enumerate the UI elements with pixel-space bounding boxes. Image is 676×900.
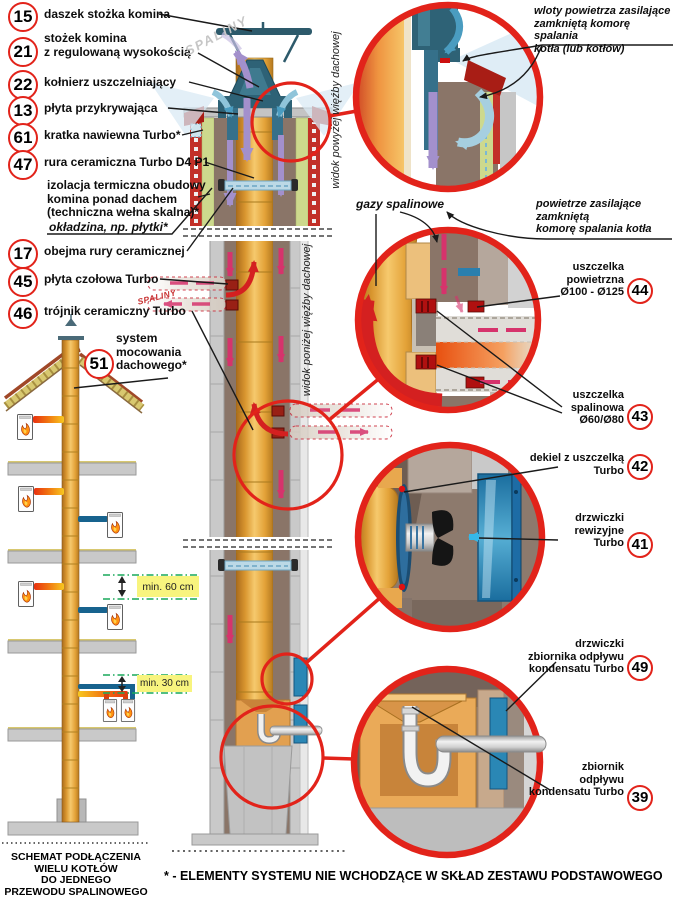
callout-label-drzwiczki-rewizyjne: drzwiczki rewizyjne Turbo [534,512,624,550]
view-label-above-roof: widok powyżej więźby dachowej [330,15,342,205]
boiler-icon [108,605,123,630]
callout-label-stozek: stożek komina z regulowaną wysokością [44,32,191,59]
callout-label-rura: rura ceramiczna Turbo D4 P1 [44,156,209,170]
callout-label-daszek: daszek stożka komina [44,8,170,22]
callout-badge-45: 45 [8,267,38,297]
callout-badge-43: 43 [627,404,653,430]
callout-label-kratka: kratka nawiewna Turbo* [44,129,180,143]
dimension-min60: min. 60 cm [137,576,199,597]
view-label-below-roof: widok poniżej więźby dachowej [301,225,313,415]
chimney-cross-section [148,22,392,851]
detail-circle-tee [356,230,548,412]
callout-label-uszczelka-spalinowa: uszczelka spalinowa Ø60/Ø80 [534,389,624,427]
footnote: * - ELEMENTY SYSTEMU NIE WCHODZĄCE W SKŁ… [164,869,674,883]
callout-badge-47: 47 [8,150,38,180]
callout-label-gazy: gazy spalinowe [356,198,444,212]
boiler-icon [19,487,34,512]
boiler-icon [19,582,34,607]
callout-label-powietrze: powietrze zasilające zamkniętą komorę sp… [536,198,676,236]
schematic-title: SCHEMAT PODŁĄCZENIA WIELU KOTŁÓW DO JEDN… [0,852,152,898]
callout-label-okladzina: okładzina, np. płytki* [49,221,168,235]
callout-badge-17: 17 [8,239,38,269]
callout-badge-46: 46 [8,299,38,329]
schematic-chimney [58,314,84,822]
detail-circle-air-inlets [352,0,545,200]
pipe-clamp-1 [218,179,298,191]
callout-label-zbiornik: zbiornik odpływu kondensatu Turbo [502,761,624,799]
callout-label-drzwiczki-zbiornika: drzwiczki zbiornika odpływu kondensatu T… [494,638,624,676]
callout-label-czolowa: płyta czołowa Turbo [44,273,158,287]
callout-badge-15: 15 [8,2,38,32]
callout-label-obejma: obejma rury ceramicznej [44,245,185,259]
callout-badge-42: 42 [627,454,653,480]
callout-badge-13: 13 [8,96,38,126]
callout-badge-61: 61 [8,123,38,153]
boiler-icon [108,513,123,538]
callout-label-mocowanie: system mocowania dachowego* [116,332,187,373]
boiler-icon [103,699,116,721]
callout-label-trojnik: trójnik ceramiczny Turbo [44,305,186,319]
callout-label-kolnierz: kołnierz uszczelniający [44,76,176,90]
boiler-icon [121,699,134,721]
callout-label-dekiel: dekiel z uszczelką Turbo [494,452,624,477]
dimension-min30: min. 30 cm [137,675,192,692]
callout-badge-44: 44 [627,278,653,304]
callout-badge-39: 39 [627,785,653,811]
drain-pipe [436,736,546,752]
callout-badge-21: 21 [8,37,38,67]
callout-badge-41: 41 [627,532,653,558]
callout-label-plyta: płyta przykrywająca [44,102,157,116]
callout-badge-51: 51 [84,349,114,379]
boiler-icon [18,415,33,440]
callout-label-wloty: wloty powietrza zasilające zamkniętą kom… [534,5,676,55]
pipe-clamp-2 [218,559,298,571]
callout-label-izolacja: izolacja termiczna obudowy komina ponad … [47,179,206,220]
callout-badge-49: 49 [627,655,653,681]
chimney-system-diagram: 15 21 22 13 61 47 17 45 46 51 44 43 42 4… [0,0,676,900]
callout-label-uszczelka-powietrzna: uszczelka powietrzna Ø100 - Ø125 [534,261,624,299]
